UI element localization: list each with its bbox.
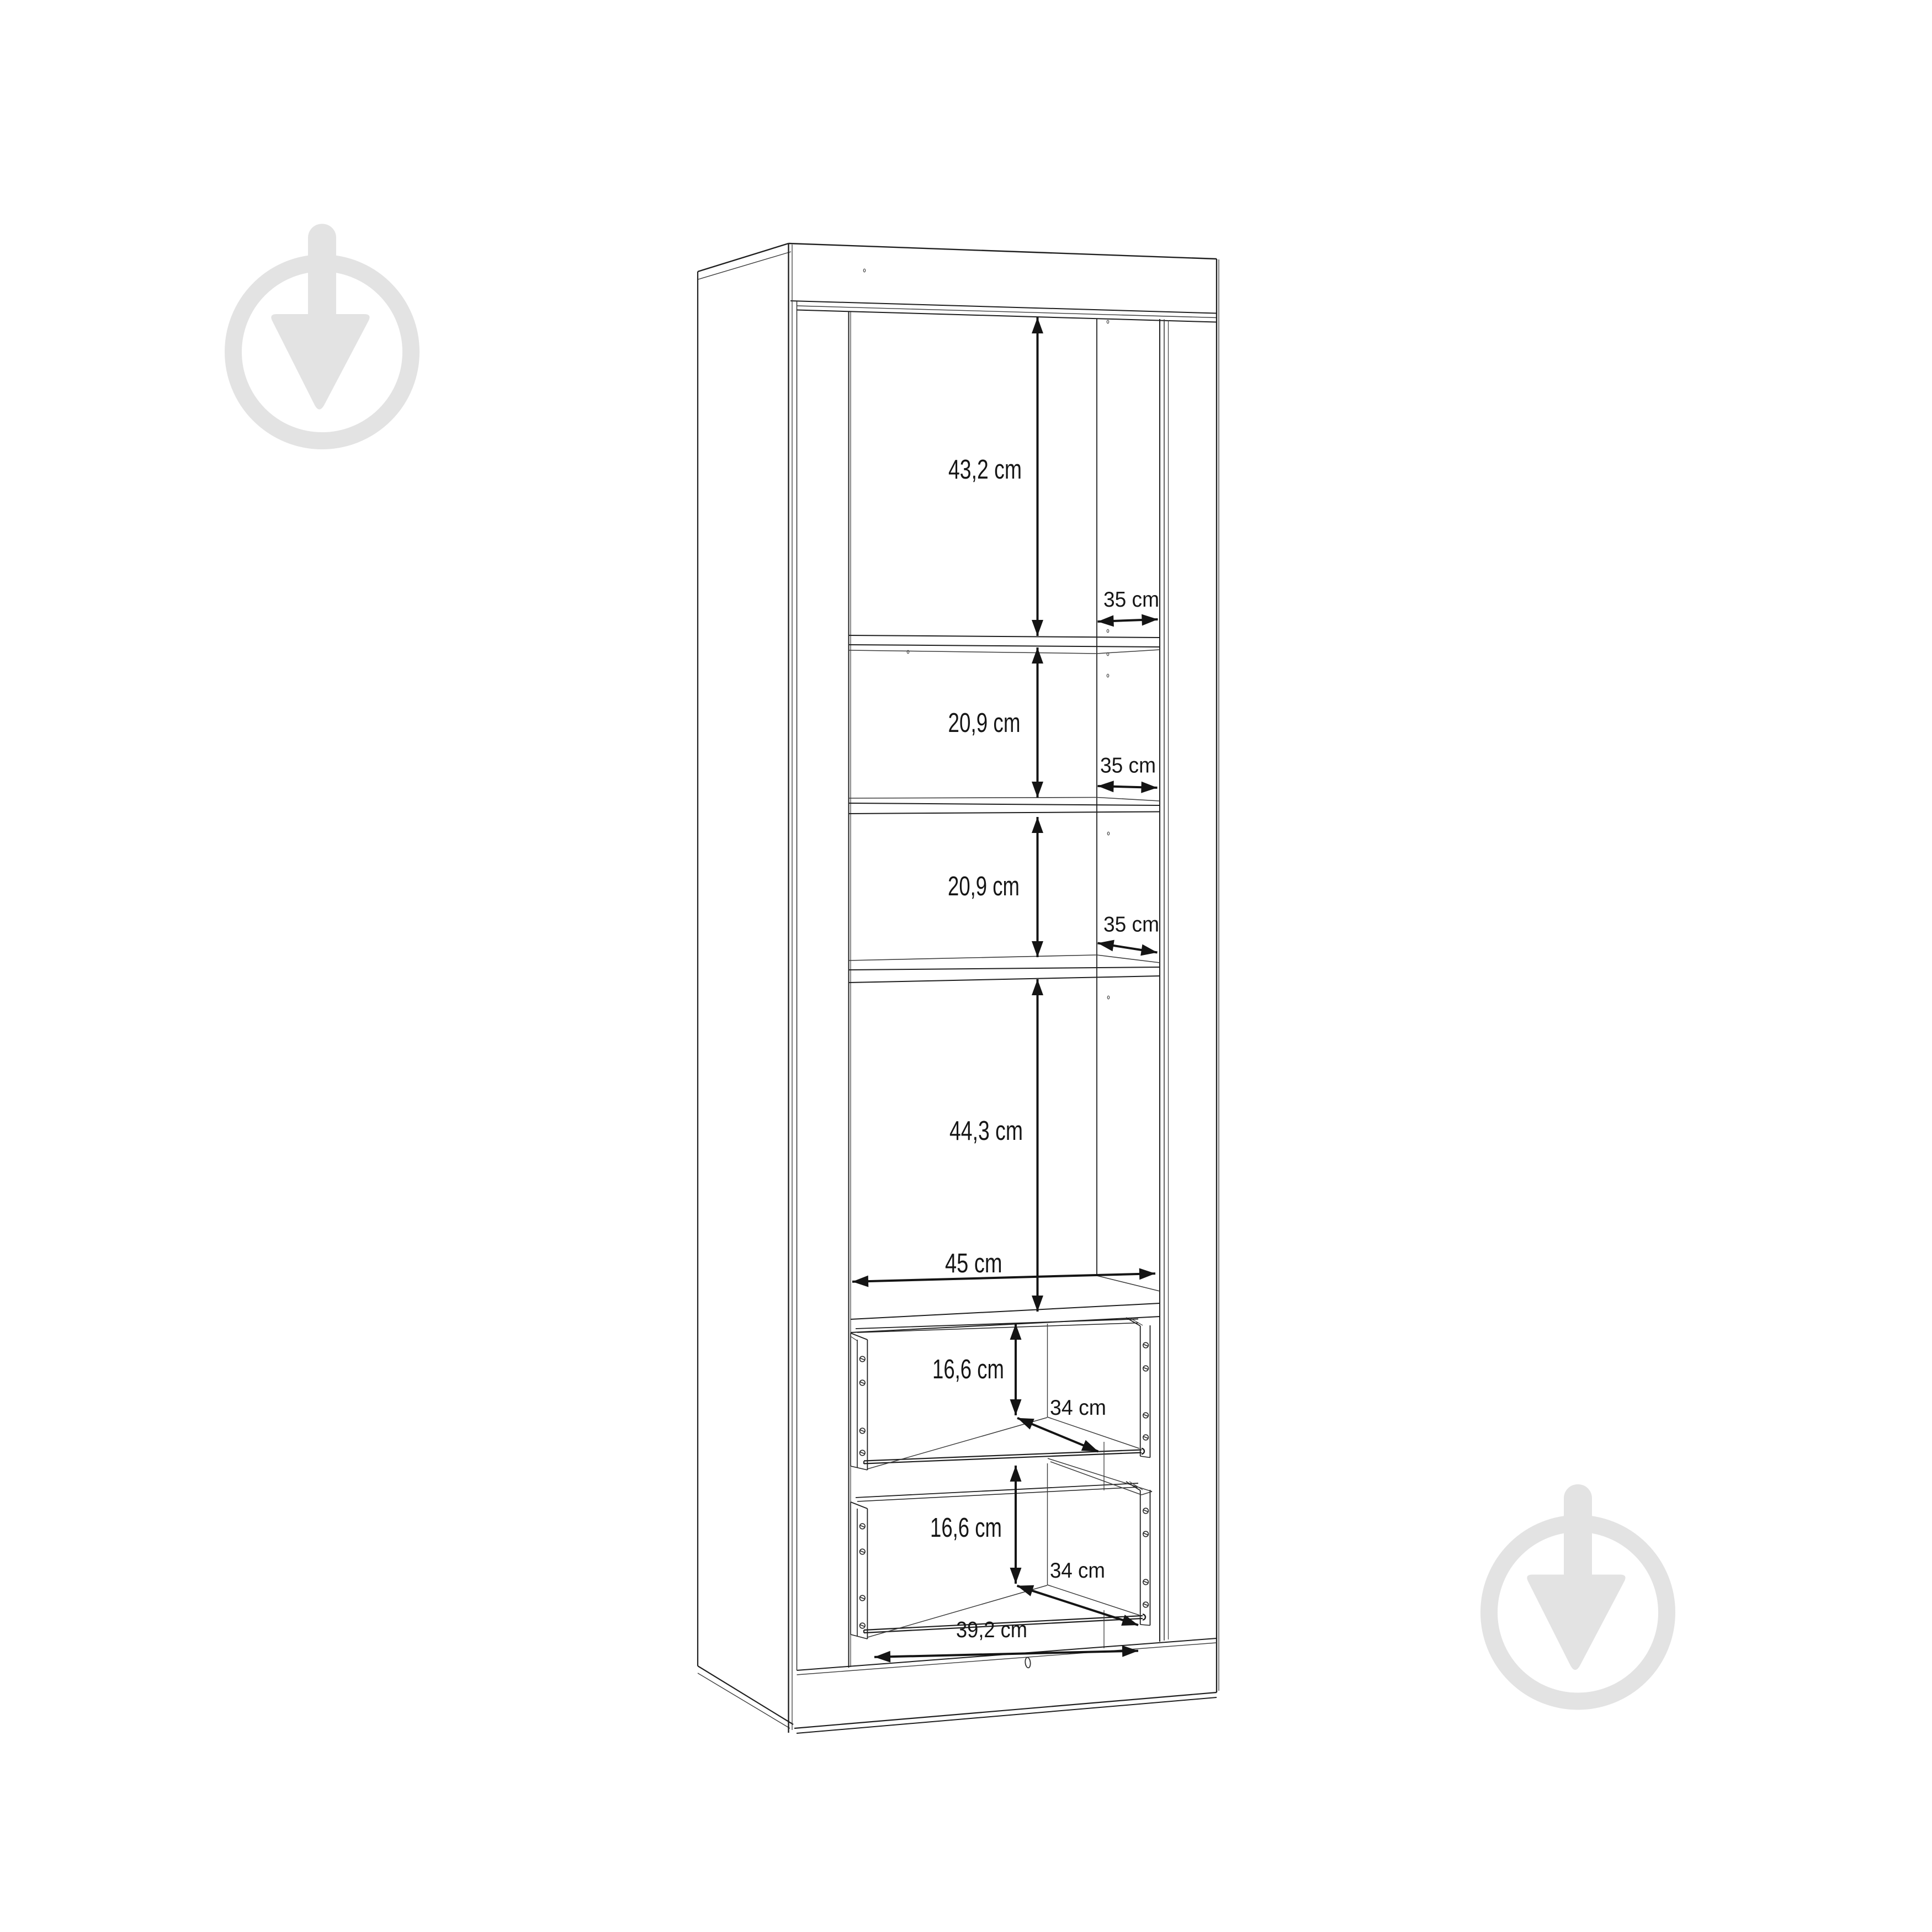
svg-text:39,2 cm: 39,2 cm [956,1617,1027,1642]
svg-text:20,9 cm: 20,9 cm [948,708,1021,738]
svg-text:44,3 cm: 44,3 cm [949,1116,1023,1146]
svg-text:35 cm: 35 cm [1100,754,1156,778]
svg-text:34 cm: 34 cm [1050,1396,1106,1420]
svg-text:16,6 cm: 16,6 cm [930,1513,1002,1543]
svg-text:43,2 cm: 43,2 cm [948,455,1022,485]
svg-text:35 cm: 35 cm [1103,913,1159,937]
svg-text:45 cm: 45 cm [945,1249,1002,1278]
svg-text:20,9 cm: 20,9 cm [948,872,1020,901]
svg-text:16,6 cm: 16,6 cm [932,1355,1004,1384]
svg-text:35 cm: 35 cm [1103,588,1159,612]
svg-text:34 cm: 34 cm [1050,1559,1105,1583]
